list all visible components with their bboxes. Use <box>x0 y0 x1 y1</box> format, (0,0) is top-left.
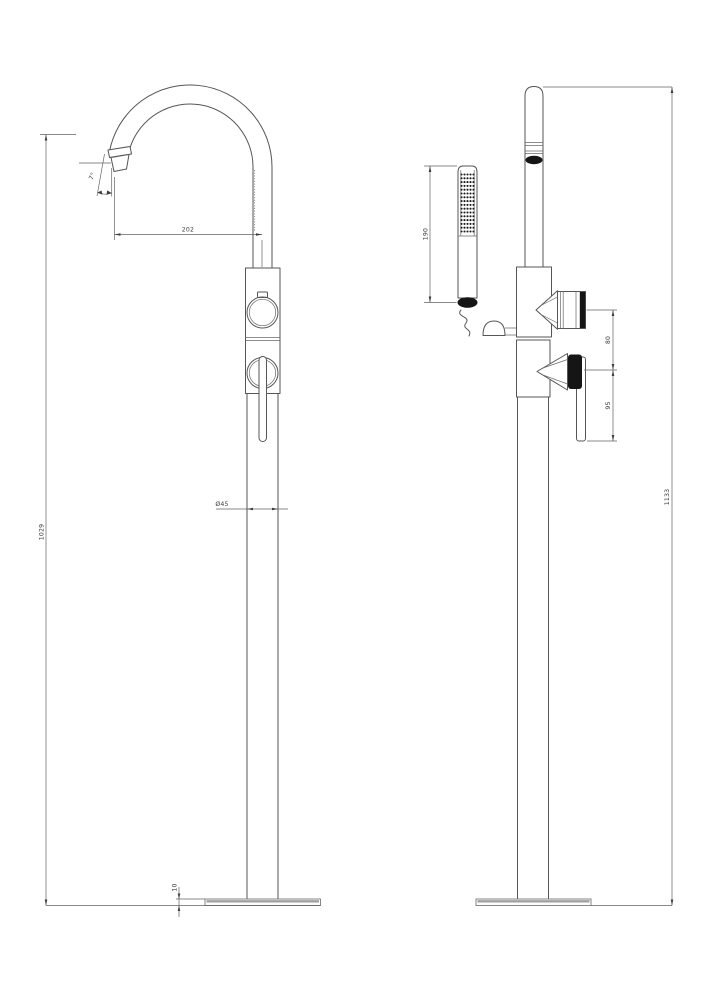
canvas-background <box>0 0 707 1000</box>
base-thickness-label: 10 <box>172 883 179 891</box>
drawing-page: 7° <box>0 0 707 1000</box>
lever-grip-side <box>568 355 582 390</box>
lever-bar-front <box>259 357 267 442</box>
nozzle-body <box>111 155 129 172</box>
base-plate-front <box>205 899 321 906</box>
base-plate-side <box>476 899 591 906</box>
column-diameter-label: Ø45 <box>215 500 228 508</box>
handshower-length-label: 190 <box>423 228 430 240</box>
spout-outlet-hole <box>526 156 543 164</box>
spout-height-label: 1029 <box>39 524 46 541</box>
handshower-inlet <box>458 297 478 308</box>
outlet-to-lever-label: 80 <box>605 336 612 344</box>
diverter-knob-grip <box>580 292 585 328</box>
overall-height-label: 1133 <box>664 489 671 506</box>
lever-length-label: 95 <box>605 401 612 409</box>
spout-reach-label: 202 <box>182 227 194 234</box>
technical-drawing: 7° <box>0 0 707 1000</box>
